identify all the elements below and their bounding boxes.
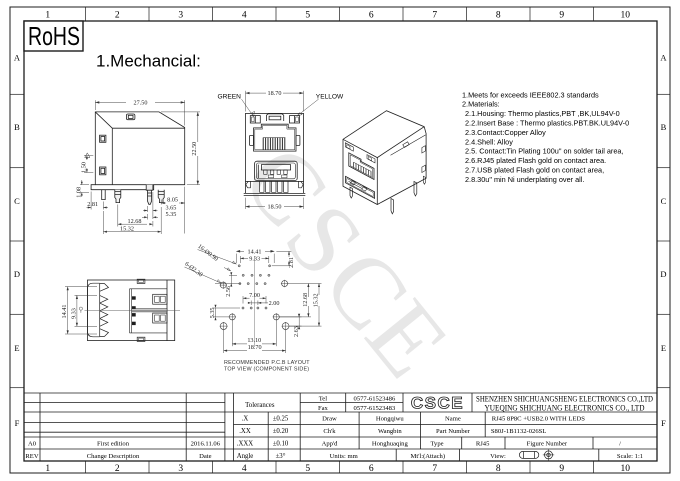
svg-text:Wangbin: Wangbin <box>378 428 402 435</box>
svg-text:/: / <box>619 441 621 448</box>
svg-text:C: C <box>14 196 20 206</box>
svg-text:8.05: 8.05 <box>167 197 178 204</box>
svg-text:2: 2 <box>115 11 120 21</box>
svg-text:Angle: Angle <box>237 453 254 460</box>
svg-text:4: 4 <box>242 11 247 21</box>
svg-text:Honghuaqing: Honghuaqing <box>372 441 409 448</box>
svg-text:Name: Name <box>445 416 461 423</box>
svg-text:12.68: 12.68 <box>128 218 142 225</box>
svg-text:B: B <box>661 122 667 132</box>
svg-text:Tolerances: Tolerances <box>245 402 275 409</box>
svg-text:4: 4 <box>242 464 247 474</box>
svg-text:8: 8 <box>496 464 501 474</box>
svg-text:2.4.Shell: Alloy: 2.4.Shell: Alloy <box>465 137 513 146</box>
svg-text:9.33: 9.33 <box>249 255 260 262</box>
svg-text:F: F <box>15 418 20 428</box>
svg-text:2.56: 2.56 <box>225 286 232 297</box>
svg-text:2.2.Insert Base : Thermo plast: 2.2.Insert Base : Thermo plastics.PBT.BK… <box>465 119 629 128</box>
svg-text:27.50: 27.50 <box>134 99 148 106</box>
svg-text:1.Mechancial:: 1.Mechancial: <box>96 52 201 71</box>
svg-text:App'd: App'd <box>322 441 339 448</box>
svg-text:RoHS: RoHS <box>28 21 80 51</box>
svg-text:D: D <box>660 269 666 279</box>
svg-text:REV: REV <box>25 453 38 460</box>
svg-text:2016.11.06: 2016.11.06 <box>191 441 221 448</box>
svg-text:2.Materials:: 2.Materials: <box>462 100 500 109</box>
svg-text:A: A <box>14 53 21 63</box>
svg-text:2: 2 <box>115 464 120 474</box>
svg-text:Scale: 1:1: Scale: 1:1 <box>617 453 643 460</box>
svg-text:8: 8 <box>496 11 501 21</box>
svg-text:C: C <box>661 196 667 206</box>
svg-text:9.33: 9.33 <box>70 308 77 319</box>
svg-text:3: 3 <box>178 11 183 21</box>
svg-text:1.50: 1.50 <box>80 162 87 173</box>
svg-text:Date: Date <box>199 453 212 460</box>
svg-text:Hongqiwu: Hongqiwu <box>376 416 405 423</box>
svg-text:16-Ø0.90: 16-Ø0.90 <box>196 243 219 263</box>
svg-text:22.50: 22.50 <box>191 142 198 156</box>
svg-text:Figure Number: Figure Number <box>527 441 568 448</box>
svg-text:2.81: 2.81 <box>288 257 295 268</box>
svg-text:Change Description: Change Description <box>87 453 140 460</box>
svg-text:±0.10: ±0.10 <box>273 441 289 448</box>
svg-text:2.81: 2.81 <box>87 201 98 208</box>
svg-text:±0.25: ±0.25 <box>273 416 289 423</box>
svg-text:14.41: 14.41 <box>61 305 68 319</box>
svg-text:TOP VIEW (COMPONENT SIDE): TOP VIEW (COMPONENT SIDE) <box>224 367 309 373</box>
svg-text:6: 6 <box>369 11 374 21</box>
svg-text:1: 1 <box>45 464 50 474</box>
svg-text:View:: View: <box>490 453 506 460</box>
svg-text:RJ45: RJ45 <box>476 441 490 448</box>
svg-text:2.6.RJ45 plated Flash gold on: 2.6.RJ45 plated Flash gold on contact ar… <box>465 156 606 165</box>
svg-text:A: A <box>660 53 667 63</box>
svg-text:14.41: 14.41 <box>248 248 262 255</box>
svg-text:CSCE: CSCE <box>411 394 464 413</box>
svg-text:Units: mm: Units: mm <box>330 453 359 460</box>
svg-text:1: 1 <box>45 11 50 21</box>
svg-text:Mt'l:(Attach): Mt'l:(Attach) <box>411 453 446 460</box>
svg-text:10: 10 <box>620 464 630 474</box>
svg-text:Fax: Fax <box>318 405 329 412</box>
svg-text:Tel: Tel <box>319 396 327 403</box>
svg-text:.XX: .XX <box>239 428 251 435</box>
svg-text:2.7.USB plated Flash gold on: 2.7.USB plated Flash gold on contact are… <box>465 166 604 175</box>
svg-text:YUEQING SHICHUANG ELECTRONICS: YUEQING SHICHUANG ELECTRONICS CO., LTD <box>485 402 645 412</box>
svg-text:6-Ø2.30: 6-Ø2.30 <box>183 261 204 279</box>
svg-text:Draw: Draw <box>322 416 337 423</box>
svg-text:RJ45 8P8C +USB2.0 WITH LEDS: RJ45 8P8C +USB2.0 WITH LEDS <box>492 416 586 423</box>
svg-text:18.70: 18.70 <box>268 90 282 97</box>
svg-text:D: D <box>14 269 20 279</box>
svg-text:2.3.Contact:Copper Alloy: 2.3.Contact:Copper Alloy <box>465 128 546 137</box>
svg-text:A0: A0 <box>28 441 37 448</box>
svg-text:First edition: First edition <box>97 441 130 448</box>
svg-text:B: B <box>14 122 20 132</box>
svg-text:2.1.Housing: Thermo plastics,: 2.1.Housing: Thermo plastics,PBT ,BK,UL9… <box>465 109 620 118</box>
svg-text:10: 10 <box>620 11 630 21</box>
svg-text:RECOMMENDED P.C.B LAYOUT: RECOMMENDED P.C.B LAYOUT <box>224 360 310 366</box>
svg-text:6: 6 <box>369 464 374 474</box>
svg-text:9: 9 <box>559 464 564 474</box>
svg-text:1.08: 1.08 <box>75 187 82 198</box>
svg-text:F: F <box>661 418 666 428</box>
svg-text:2.5. Contact:Tin Plating 100u": 2.5. Contact:Tin Plating 100u" on solder… <box>465 147 624 156</box>
svg-text:±3°: ±3° <box>276 453 286 460</box>
svg-text:15.32: 15.32 <box>120 225 134 232</box>
svg-text:7: 7 <box>432 11 437 21</box>
svg-text:E: E <box>661 343 666 353</box>
svg-text:18.70: 18.70 <box>248 344 262 351</box>
svg-text:5: 5 <box>305 464 310 474</box>
svg-text:5.35: 5.35 <box>166 211 177 218</box>
svg-text:1.Meets for exceeds IEEE802.3: 1.Meets for exceeds IEEE802.3 standards <box>462 90 599 99</box>
svg-text:2.8.30u" min Ni underplating o: 2.8.30u" min Ni underplating over all. <box>465 175 584 184</box>
svg-text:5.35: 5.35 <box>209 307 216 318</box>
svg-text:E: E <box>14 343 19 353</box>
svg-text:9: 9 <box>559 11 564 21</box>
svg-text:Ch'k: Ch'k <box>323 428 336 435</box>
svg-text:7: 7 <box>432 464 437 474</box>
svg-text:.XXX: .XXX <box>237 441 254 448</box>
svg-text:GREEN: GREEN <box>218 94 242 101</box>
svg-text:2.00: 2.00 <box>269 300 280 307</box>
svg-text:5: 5 <box>305 11 310 21</box>
svg-text:2.63: 2.63 <box>293 326 300 337</box>
svg-text:0577-61523486: 0577-61523486 <box>354 396 396 403</box>
svg-text:15.32: 15.32 <box>313 293 320 307</box>
svg-text:±0.20: ±0.20 <box>273 428 289 435</box>
svg-text:Type: Type <box>430 441 443 448</box>
svg-text:.X: .X <box>242 416 249 423</box>
svg-text:S80J-1B1132-026SL: S80J-1B1132-026SL <box>491 428 546 435</box>
svg-text:18.50: 18.50 <box>268 204 282 211</box>
svg-text:Part Number: Part Number <box>436 428 471 435</box>
svg-text:7.00: 7.00 <box>249 292 260 299</box>
svg-text:0577-61523483: 0577-61523483 <box>354 405 396 412</box>
svg-text:3: 3 <box>178 464 183 474</box>
svg-text:YELLOW: YELLOW <box>316 94 344 101</box>
svg-text:12.68: 12.68 <box>302 293 309 307</box>
